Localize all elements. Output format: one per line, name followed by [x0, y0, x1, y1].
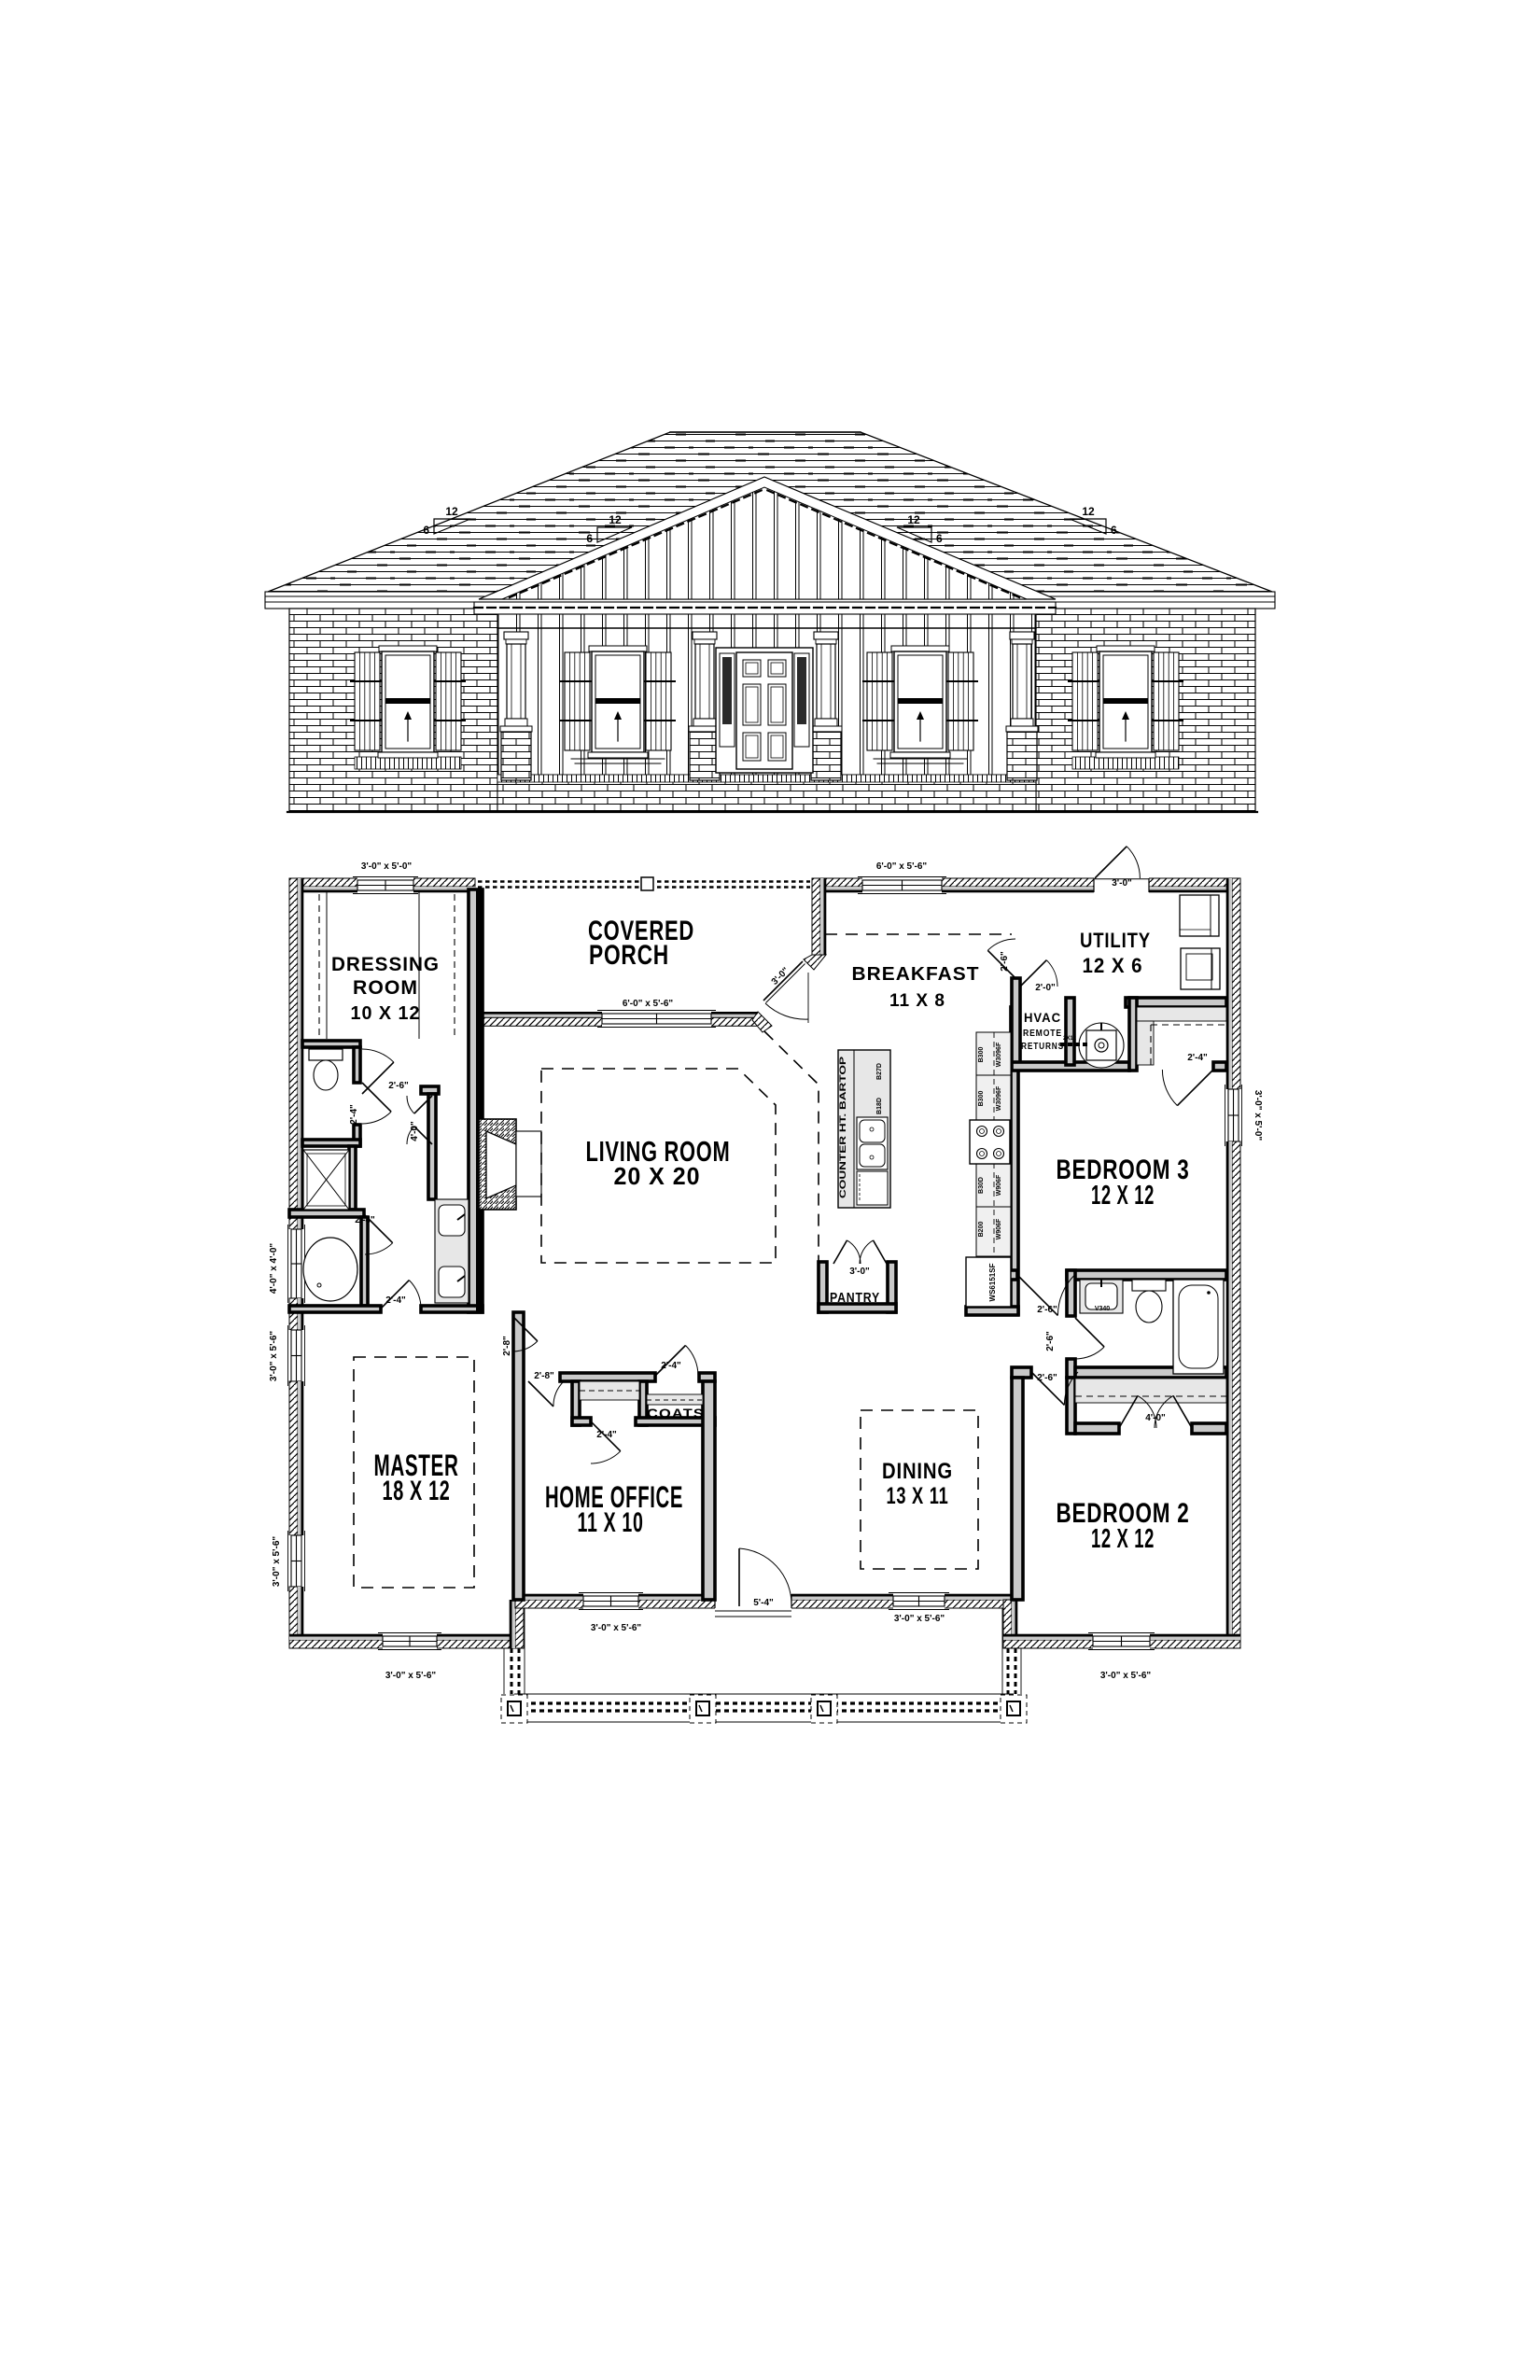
- svg-text:COATS: COATS: [647, 1406, 705, 1421]
- svg-text:4'-0": 4'-0": [410, 1121, 420, 1141]
- svg-text:2'-0": 2'-0": [1035, 983, 1056, 993]
- svg-text:6'-0" x 5'-6": 6'-0" x 5'-6": [623, 999, 674, 1009]
- svg-text:2'-8": 2'-8": [534, 1371, 554, 1381]
- svg-text:DINING: DINING: [882, 1459, 953, 1484]
- svg-text:6: 6: [936, 532, 943, 545]
- svg-text:3'-0" x 5'-6": 3'-0" x 5'-6": [269, 1331, 279, 1382]
- svg-text:2'-4": 2'-4": [596, 1430, 617, 1440]
- svg-text:2'-6": 2'-6": [1037, 1305, 1057, 1315]
- svg-text:3'-0" x 5'-6": 3'-0" x 5'-6": [591, 1623, 642, 1633]
- svg-text:PORCH: PORCH: [589, 940, 669, 971]
- svg-text:11 X 8: 11 X 8: [889, 991, 945, 1011]
- svg-text:2'-6": 2'-6": [1045, 1331, 1056, 1351]
- svg-text:2'-6": 2'-6": [1000, 951, 1010, 972]
- svg-text:UTILITY: UTILITY: [1080, 929, 1151, 952]
- svg-text:3'-0" x 5'-6": 3'-0" x 5'-6": [1100, 1671, 1152, 1681]
- svg-text:2'-4": 2'-4": [355, 1215, 375, 1225]
- svg-text:BREAKFAST: BREAKFAST: [852, 964, 980, 985]
- svg-text:3'-0" x 5'-6": 3'-0" x 5'-6": [894, 1614, 945, 1624]
- svg-text:6: 6: [586, 532, 593, 545]
- svg-text:RETURNS: RETURNS: [1021, 1042, 1064, 1052]
- svg-text:HVAC: HVAC: [1024, 1010, 1061, 1025]
- svg-text:3'-0" x 5'-0": 3'-0" x 5'-0": [361, 861, 413, 872]
- svg-text:2'-4": 2'-4": [385, 1295, 406, 1306]
- svg-text:W3096F: W3096F: [996, 1042, 1002, 1067]
- svg-text:6'-0" x 5'-6": 6'-0" x 5'-6": [876, 861, 928, 872]
- svg-text:B27D: B27D: [876, 1063, 883, 1080]
- svg-text:3'-0": 3'-0": [849, 1267, 870, 1277]
- svg-text:V340: V340: [1095, 1306, 1110, 1312]
- svg-text:2X12: 2X12: [1063, 1036, 1077, 1042]
- svg-text:6: 6: [423, 524, 429, 537]
- svg-text:2'-8": 2'-8": [502, 1336, 512, 1356]
- svg-text:2'-4": 2'-4": [661, 1361, 681, 1371]
- svg-text:3'-0" x 5'-6": 3'-0" x 5'-6": [385, 1671, 437, 1681]
- svg-text:2'-6": 2'-6": [388, 1081, 409, 1091]
- svg-text:12: 12: [907, 513, 920, 526]
- svg-text:DRESSING: DRESSING: [331, 954, 440, 975]
- svg-text:12 X 12: 12 X 12: [1091, 1181, 1155, 1211]
- svg-text:2'-6": 2'-6": [1037, 1373, 1057, 1383]
- svg-text:13 X 11: 13 X 11: [887, 1483, 949, 1509]
- svg-text:10 X 12: 10 X 12: [351, 1003, 421, 1024]
- svg-text:4'-0": 4'-0": [1145, 1413, 1166, 1423]
- svg-text:2'-4": 2'-4": [1187, 1053, 1208, 1063]
- svg-text:COUNTER HT. BARTOP: COUNTER HT. BARTOP: [838, 1057, 847, 1198]
- svg-text:11 X 10: 11 X 10: [578, 1507, 644, 1538]
- svg-text:12: 12: [445, 505, 458, 518]
- svg-text:WS6151SF: WS6151SF: [988, 1263, 997, 1301]
- svg-text:4'-0" x 4'-0": 4'-0" x 4'-0": [269, 1243, 279, 1295]
- svg-text:5'-4": 5'-4": [753, 1598, 774, 1608]
- svg-text:12: 12: [609, 513, 622, 526]
- svg-text:3'-0" x 5'-0": 3'-0" x 5'-0": [1253, 1090, 1263, 1141]
- svg-text:20 X 20: 20 X 20: [614, 1162, 701, 1190]
- svg-text:ROOM: ROOM: [353, 977, 418, 999]
- svg-text:2'-4": 2'-4": [349, 1104, 359, 1125]
- svg-text:3'-0" x 5'-6": 3'-0" x 5'-6": [272, 1536, 282, 1588]
- svg-text:12 X 12: 12 X 12: [1091, 1524, 1155, 1554]
- svg-text:W3096F: W3096F: [996, 1085, 1002, 1111]
- svg-text:B30D: B30D: [978, 1177, 985, 1194]
- svg-text:B300: B300: [978, 1047, 985, 1063]
- svg-text:12: 12: [1082, 505, 1095, 518]
- svg-text:REMOTE: REMOTE: [1023, 1029, 1062, 1039]
- svg-text:18 X 12: 18 X 12: [383, 1476, 451, 1506]
- svg-text:B18D: B18D: [876, 1098, 883, 1114]
- svg-text:B300: B300: [978, 1091, 985, 1107]
- svg-text:12 X 6: 12 X 6: [1083, 954, 1143, 977]
- svg-text:6: 6: [1111, 524, 1117, 537]
- svg-text:B200: B200: [978, 1222, 985, 1238]
- svg-text:PANTRY: PANTRY: [830, 1290, 880, 1306]
- svg-text:3'-0": 3'-0": [1112, 878, 1132, 889]
- svg-text:W906F: W906F: [996, 1218, 1002, 1239]
- svg-text:W906F: W906F: [996, 1174, 1002, 1196]
